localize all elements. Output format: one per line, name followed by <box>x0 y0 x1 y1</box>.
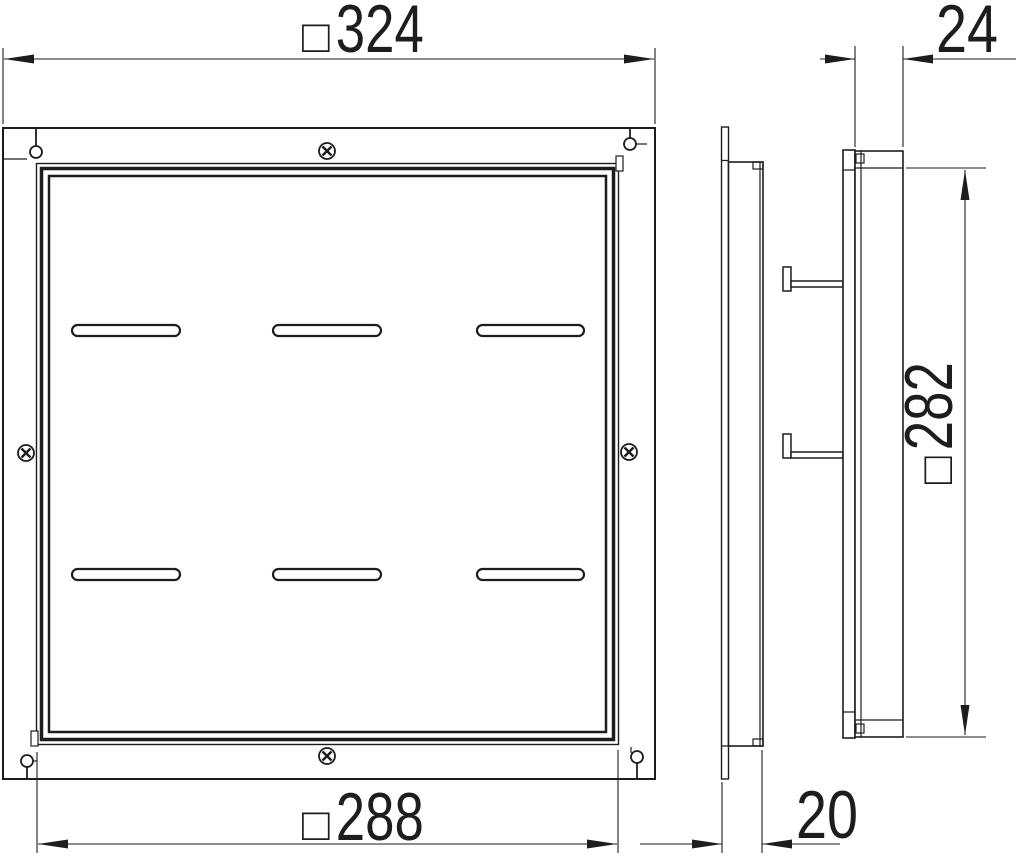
arrowhead-icon <box>692 840 722 849</box>
front-trim-profile <box>843 150 855 738</box>
retaining-clip <box>783 434 843 458</box>
dimension-side-height: □282 <box>891 168 986 737</box>
arrowhead-icon <box>38 840 68 849</box>
arrowhead-icon <box>961 705 970 735</box>
cover-plate-outer-edge <box>37 164 619 745</box>
corner-tab <box>616 156 623 171</box>
arrowhead-icon <box>624 55 654 64</box>
dimension-label: 24 <box>936 0 998 67</box>
ventilation-slot <box>72 569 180 580</box>
drawing-canvas: □324 24 □288 20 <box>0 0 1024 861</box>
front-view <box>3 128 655 779</box>
arrowhead-icon <box>903 55 933 64</box>
dimension-depth-right: 24 <box>820 0 1016 147</box>
corner-tab <box>31 731 38 746</box>
side-view-middle <box>722 127 764 779</box>
dimension-label: □288 <box>302 779 424 855</box>
ventilation-slot <box>72 325 180 336</box>
arrowhead-icon <box>825 55 855 64</box>
dimension-outer-width: □324 <box>3 0 655 124</box>
ventilation-slot <box>477 325 584 336</box>
side-view-right <box>783 150 903 738</box>
dimension-label: □324 <box>302 0 424 67</box>
flange-plate-profile <box>722 127 729 779</box>
arrowhead-icon <box>587 840 617 849</box>
ventilation-slot <box>273 325 381 336</box>
retaining-clip <box>783 267 843 291</box>
cover-body-profile <box>729 162 764 746</box>
arrowhead-icon <box>4 55 34 64</box>
dimension-depth-middle: 20 <box>640 750 858 853</box>
technical-drawing: □324 24 □288 20 <box>0 0 1024 861</box>
ventilation-slot <box>273 569 381 580</box>
ventilation-slot <box>477 569 584 580</box>
arrowhead-icon <box>762 840 792 849</box>
dimension-label: 20 <box>796 777 858 853</box>
arrowhead-icon <box>961 170 970 200</box>
